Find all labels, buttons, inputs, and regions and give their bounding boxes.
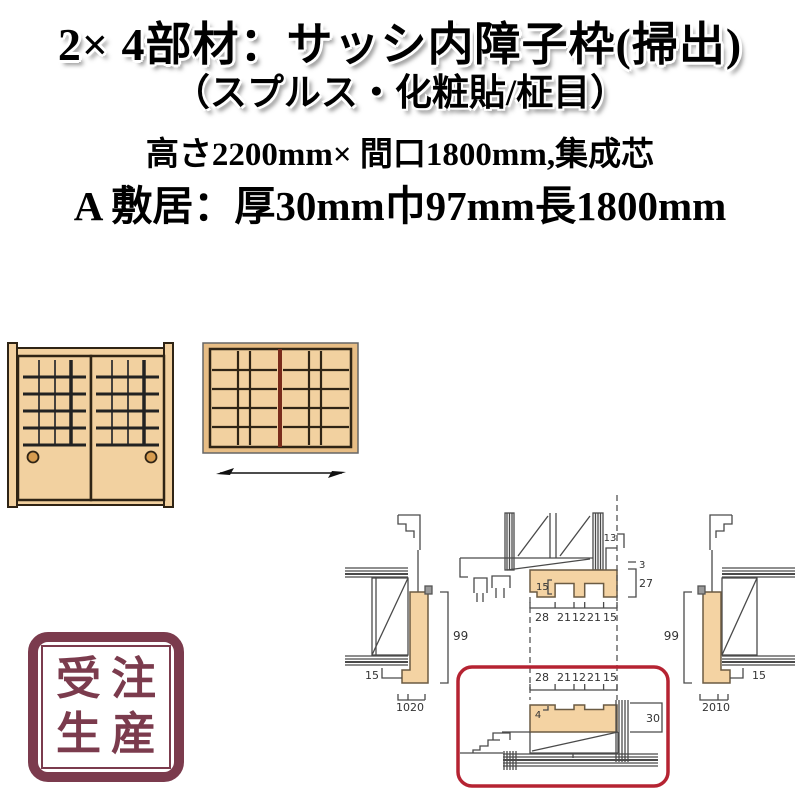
cross-section-drawing: 15 99 10 20 15 99 20 10 13 15 3 27 28 21… bbox=[340, 490, 800, 800]
dim-label: 15 bbox=[752, 669, 766, 682]
dim-label: 20 bbox=[410, 701, 424, 714]
dim-label: 12 bbox=[572, 671, 586, 684]
stamp-text-line2: 生産 bbox=[46, 707, 166, 762]
dim-label: 28 bbox=[535, 671, 549, 684]
window-frame-illustration bbox=[200, 338, 365, 488]
dim-label: 13 bbox=[604, 533, 617, 544]
dim-label: 21 bbox=[557, 671, 571, 684]
dim-label: 21 bbox=[557, 611, 571, 624]
dim-label: 10 bbox=[716, 701, 730, 714]
stamp-inner-border: 受注 生産 bbox=[41, 645, 171, 769]
spec-size-line: 高さ2200mm× 間口1800mm,集成芯 bbox=[0, 127, 800, 175]
slide-arrow bbox=[216, 468, 346, 478]
right-jamb-section bbox=[684, 515, 795, 700]
dim-label: 20 bbox=[702, 701, 716, 714]
head-jamb-section bbox=[460, 513, 636, 608]
spec-part-line: A 敷居：厚30mm巾97mm長1800mm bbox=[0, 172, 800, 232]
dim-label: 12 bbox=[572, 611, 586, 624]
dim-label: 27 bbox=[639, 577, 653, 590]
shoji-doors-illustration bbox=[5, 335, 190, 515]
dim-label: 15 bbox=[536, 582, 549, 593]
dim-label: 3 bbox=[639, 560, 645, 571]
dim-label: 15 bbox=[603, 671, 617, 684]
frame-center-divider bbox=[278, 349, 282, 447]
product-image: 2× 4部材：サッシ内障子枠(掃出) （スプルス・化粧貼/柾目） 高さ2200m… bbox=[0, 0, 800, 800]
dim-label: 4 bbox=[535, 710, 541, 721]
dim-label: 28 bbox=[535, 611, 549, 624]
dim-label: 21 bbox=[587, 611, 601, 624]
dim-label: 15 bbox=[365, 669, 379, 682]
left-jamb-section bbox=[345, 515, 448, 700]
dim-label: 15 bbox=[603, 611, 617, 624]
product-subtitle: （スプルス・化粧貼/柾目） bbox=[0, 62, 800, 116]
made-to-order-stamp: 受注 生産 bbox=[28, 632, 184, 782]
dim-label: 99 bbox=[664, 629, 679, 643]
left-door-handle bbox=[28, 452, 39, 463]
dim-label: 21 bbox=[587, 671, 601, 684]
sill-section bbox=[460, 684, 662, 770]
dim-label: 10 bbox=[396, 701, 410, 714]
dim-label: 99 bbox=[453, 629, 468, 643]
stamp-text-line1: 受注 bbox=[46, 652, 166, 707]
dim-label: 30 bbox=[646, 712, 660, 725]
right-door-handle bbox=[146, 452, 157, 463]
